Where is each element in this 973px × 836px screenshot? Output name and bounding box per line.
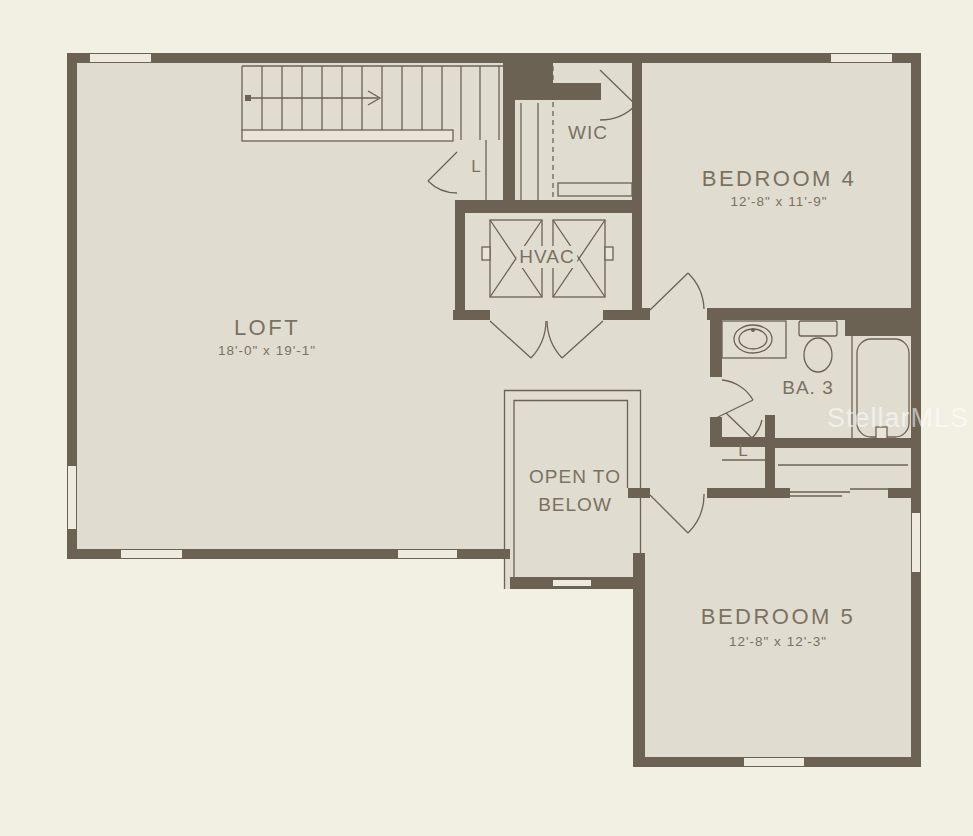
sink	[722, 321, 786, 358]
wall-bath3-left	[710, 320, 722, 377]
hvac-label: HVAC	[516, 246, 577, 268]
wall-bath3-top	[707, 308, 911, 320]
open-to-below-railing	[505, 391, 641, 590]
wall-bedroom5-hinge-stub	[628, 488, 650, 498]
open-to-below-line2: BELOW	[538, 494, 612, 516]
bedroom5-label: BEDROOM 5	[701, 604, 856, 630]
opening-open-below	[552, 579, 592, 587]
bedroom4-label: BEDROOM 4	[702, 166, 857, 192]
bedroom4-door	[650, 273, 704, 310]
wall-bedroom5-top-right	[888, 488, 911, 498]
stair-direction-arrow	[245, 91, 380, 105]
linen-bath-label: L	[738, 441, 747, 461]
window-bedroom5-bottom	[743, 757, 805, 767]
mls-watermark: StellarMLS	[827, 403, 969, 434]
wall-top	[67, 53, 921, 63]
loft-dims: 18'-0" x 19'-1"	[218, 343, 316, 358]
wic-shelf	[558, 183, 632, 196]
open-to-below-line1: OPEN TO	[529, 466, 621, 488]
wic-label: WIC	[568, 122, 608, 144]
toilet	[799, 321, 837, 372]
wall-tub-alcove	[845, 320, 911, 336]
wall-hall-band	[455, 200, 642, 213]
wall-bath3-bottom	[775, 438, 911, 448]
wall-bedroom5-top	[707, 488, 790, 498]
linen-stairs-label: L	[471, 157, 480, 177]
window-loft-top	[89, 53, 152, 63]
window-bedroom4-top	[830, 53, 893, 63]
window-bedroom5-right	[911, 512, 921, 573]
wall-stairwell-block	[503, 53, 553, 100]
wall-wic-top	[553, 83, 601, 100]
loft-closet-door	[428, 152, 457, 193]
wall-hvac-left	[455, 200, 465, 320]
loft-label: LOFT	[234, 315, 300, 341]
window-loft-left	[67, 465, 77, 530]
floor-plan: LOFT 18'-0" x 19'-1" WIC L HVAC BEDROOM …	[0, 0, 973, 836]
wall-bedroom4-left	[632, 53, 642, 320]
window-loft-bottom-1	[120, 549, 183, 559]
stairs	[242, 66, 503, 141]
bath3-label: BA. 3	[782, 377, 833, 399]
hvac-doors	[490, 321, 603, 358]
wall-linen-right	[765, 415, 775, 498]
bedroom5-dims: 12'-8" x 12'-3"	[729, 634, 827, 649]
linen-bath-door	[726, 413, 762, 438]
wall-hvac-bottom-left	[453, 310, 490, 320]
bedroom4-dims: 12'-8" x 11'-9"	[730, 194, 827, 209]
wall-bedroom4-bottom-stub	[632, 308, 650, 320]
bedroom5-door	[650, 494, 704, 533]
window-loft-bottom-2	[397, 549, 458, 559]
bath3-door	[716, 380, 753, 418]
wic-door	[600, 70, 636, 120]
